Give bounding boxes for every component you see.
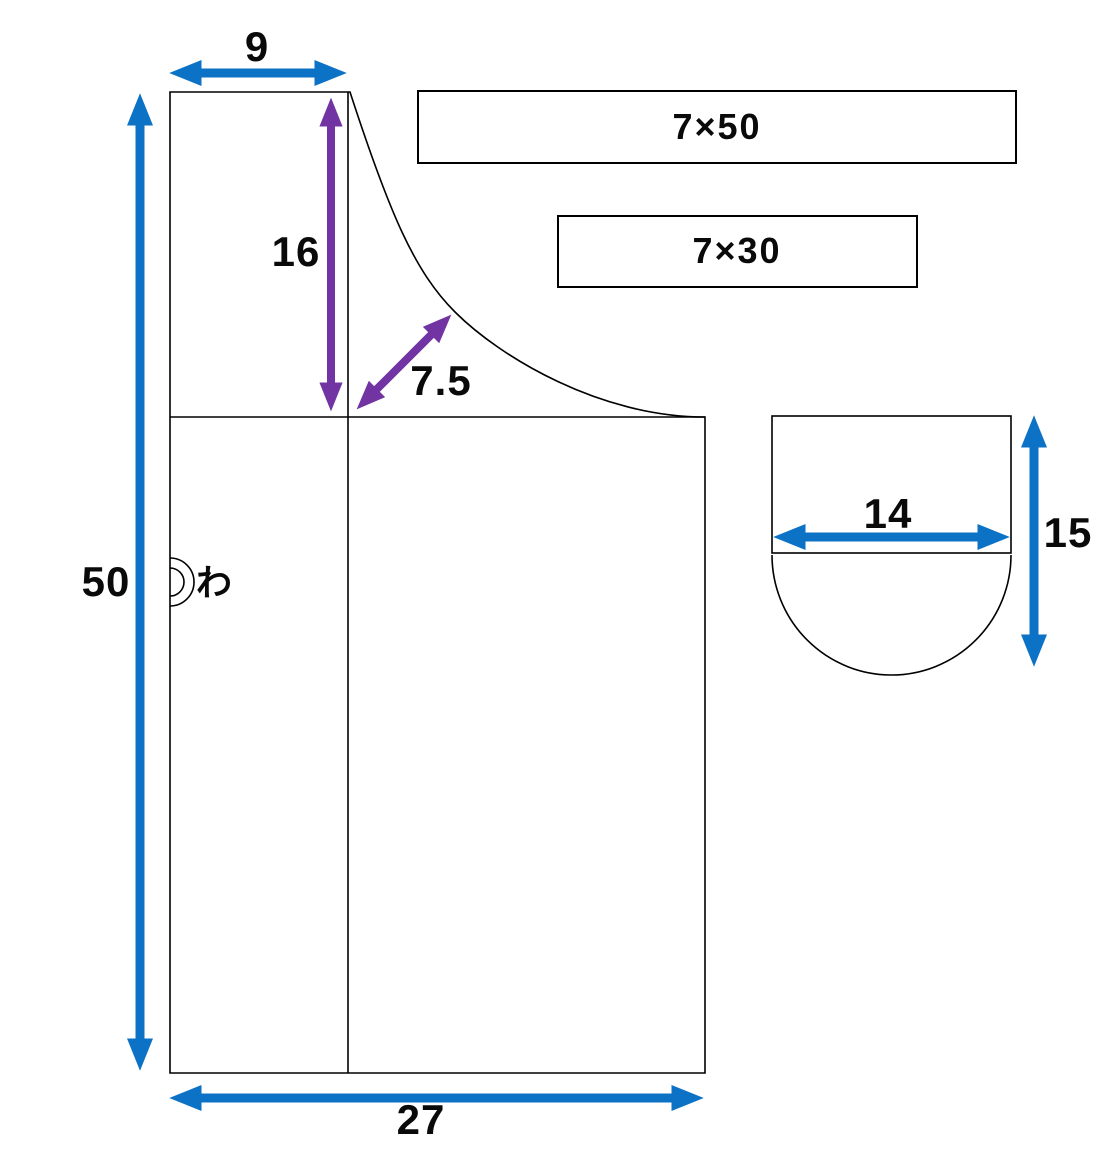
label-top-width: 9: [245, 26, 269, 68]
label-pocket-width: 14: [864, 493, 913, 535]
label-side-height: 50: [82, 561, 131, 603]
label-neck-depth: 16: [272, 231, 321, 273]
label-fold-mark: わ: [196, 565, 232, 601]
pocket-bottom-curve: [772, 555, 1011, 675]
label-bottom-width: 27: [397, 1099, 446, 1141]
fold-mark-inner-arc: [170, 568, 184, 596]
pattern-canvas: 9 16 7.5 50 わ 27 7×50 7×30 14 15: [0, 0, 1112, 1168]
label-strap-long: 7×50: [672, 109, 761, 145]
label-strap-short: 7×30: [692, 233, 781, 269]
label-pocket-height: 15: [1044, 512, 1093, 554]
fold-mark-outer-arc: [170, 558, 194, 606]
pattern-diagram-svg: [0, 0, 1112, 1168]
label-neck-curve: 7.5: [410, 360, 471, 402]
